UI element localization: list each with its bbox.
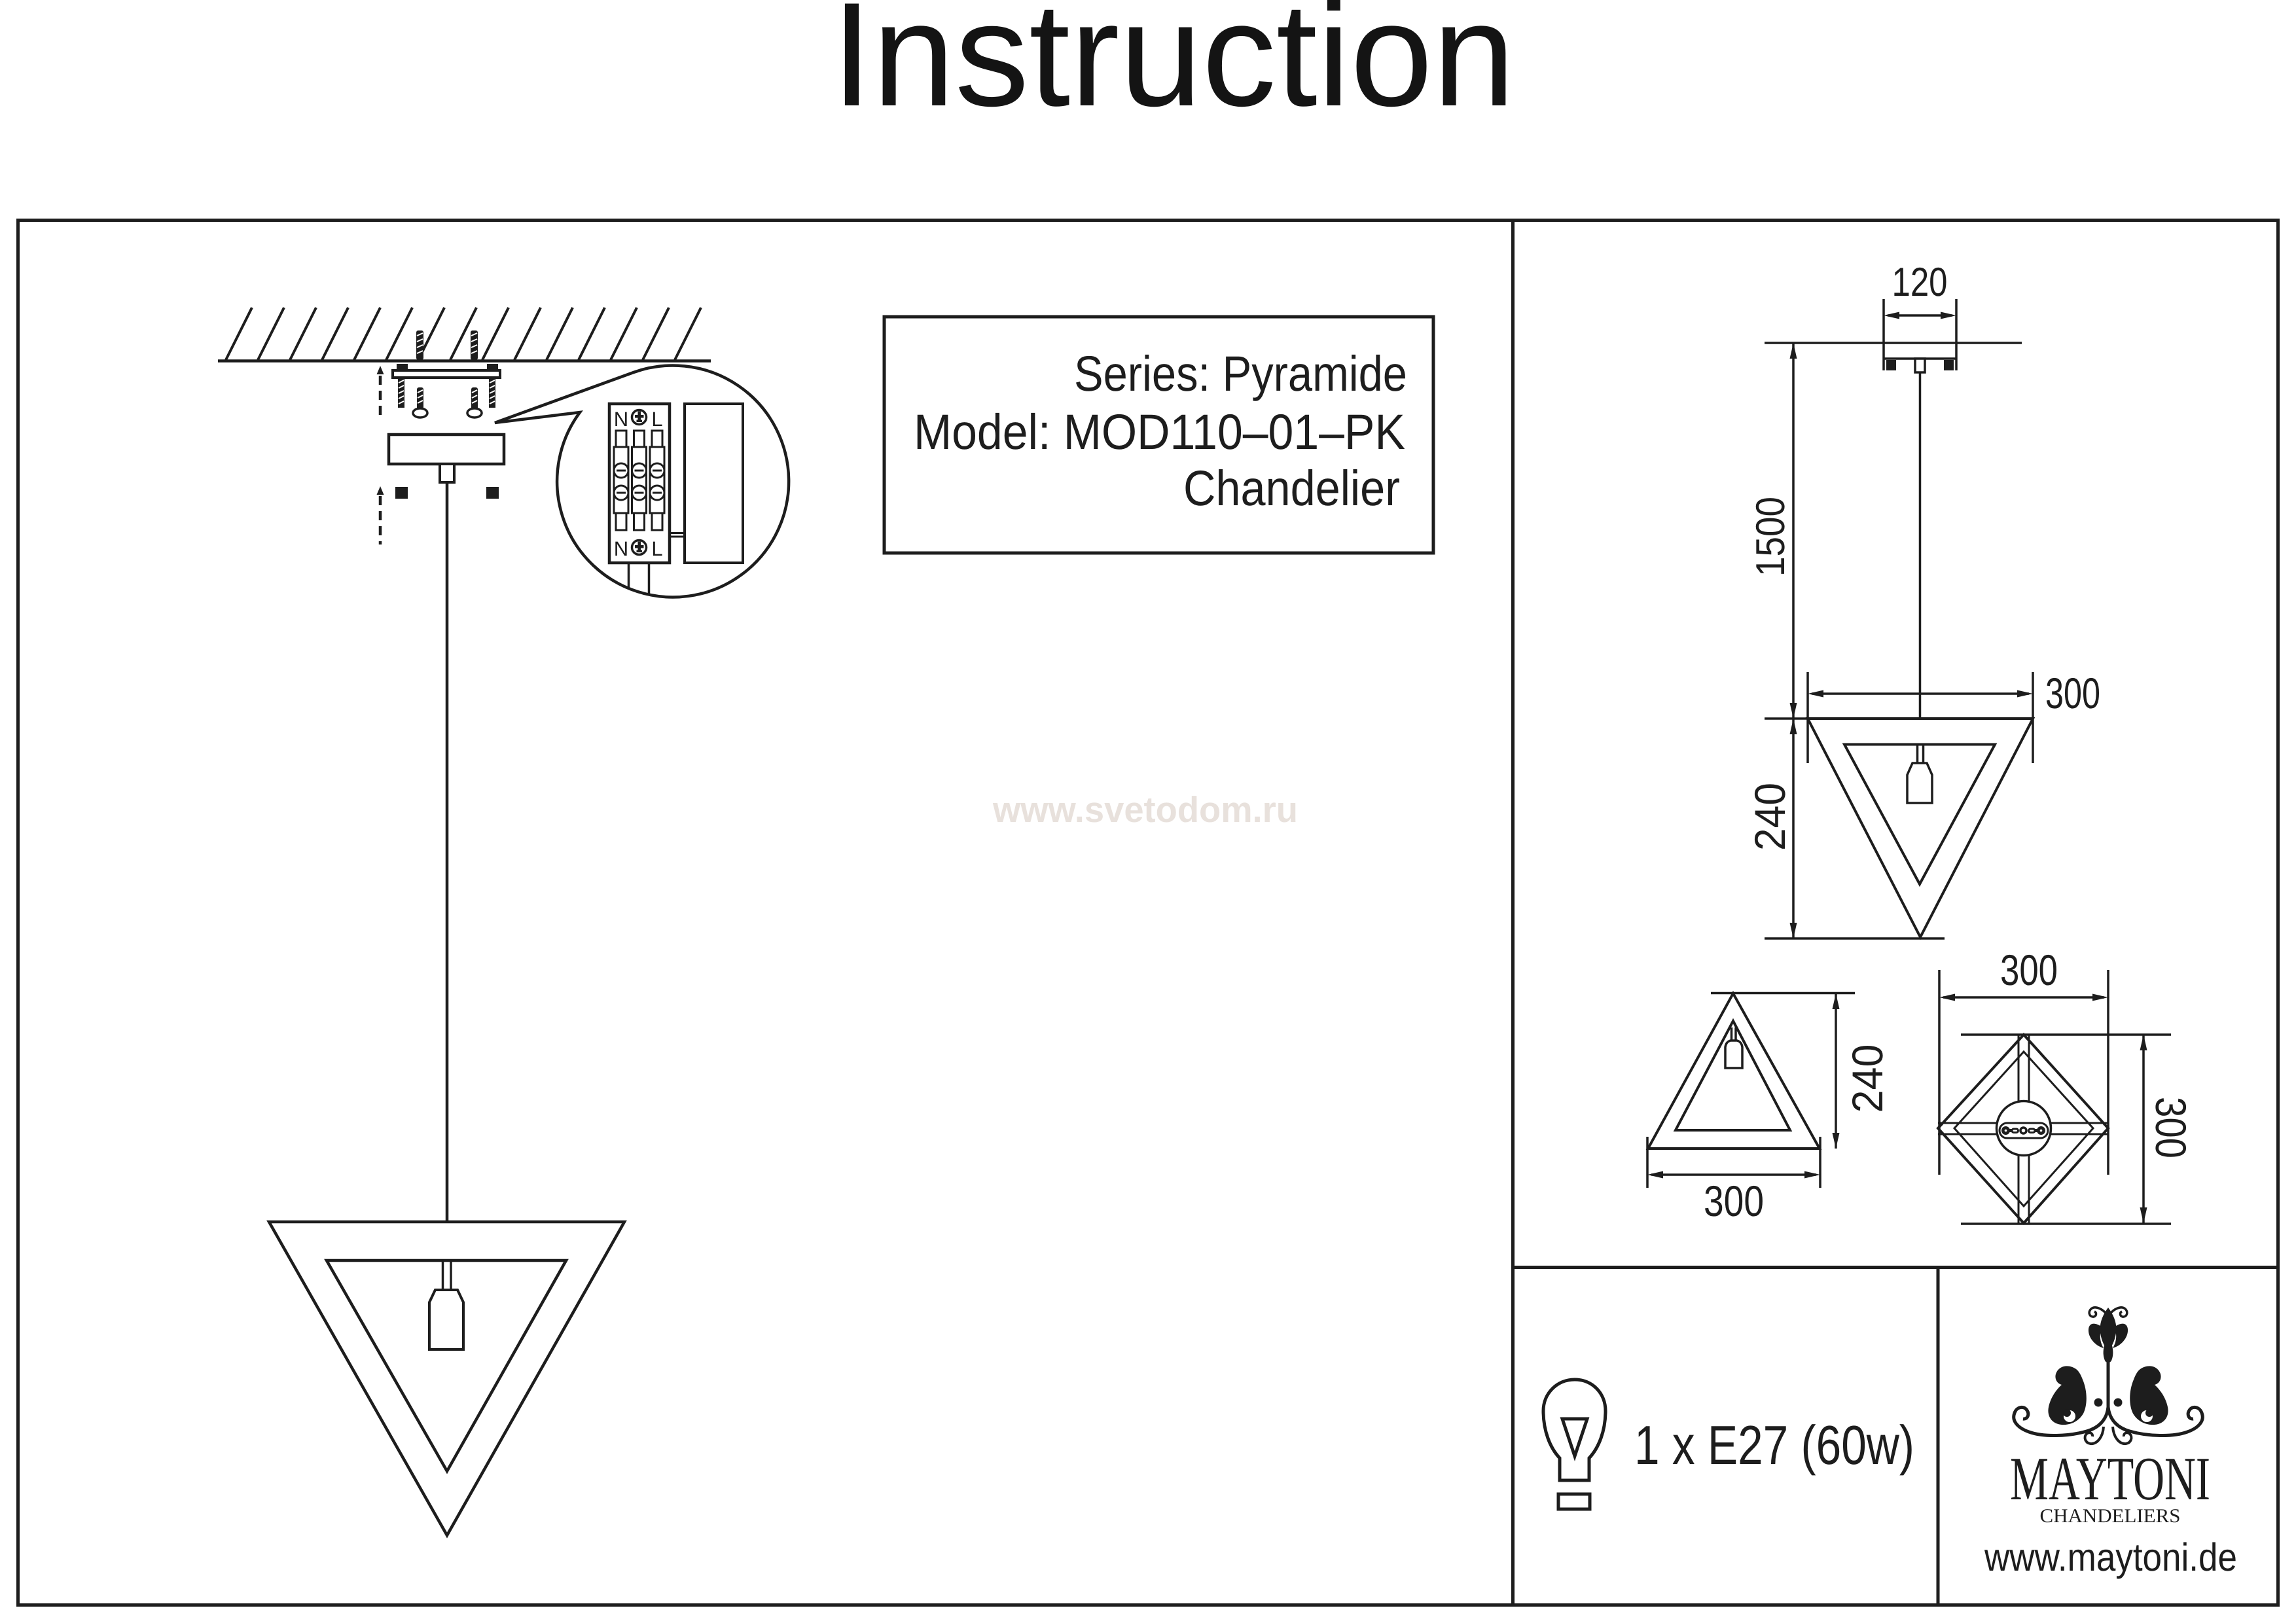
svg-text:300: 300 bbox=[2147, 1097, 2195, 1158]
svg-text:300: 300 bbox=[2045, 669, 2100, 717]
svg-text:1 x E27 (60w): 1 x E27 (60w) bbox=[1634, 1414, 1914, 1476]
svg-text:300: 300 bbox=[2000, 946, 2058, 994]
svg-text:L: L bbox=[651, 537, 662, 560]
svg-text:N: N bbox=[614, 537, 628, 560]
svg-text:Series: Pyramide: Series: Pyramide bbox=[1074, 346, 1407, 402]
svg-text:240: 240 bbox=[1843, 1044, 1892, 1113]
svg-text:www.maytoni.de: www.maytoni.de bbox=[1984, 1535, 2237, 1579]
svg-text:www.svetodom.ru: www.svetodom.ru bbox=[992, 789, 1298, 830]
svg-text:Instruction: Instruction bbox=[831, 0, 1515, 137]
svg-text:N: N bbox=[614, 408, 628, 431]
svg-text:Model: MOD110–01–PK: Model: MOD110–01–PK bbox=[914, 404, 1405, 460]
svg-text:MAYTONI: MAYTONI bbox=[2010, 1445, 2210, 1513]
svg-text:120: 120 bbox=[1892, 260, 1948, 305]
svg-text:300: 300 bbox=[1704, 1177, 1764, 1225]
svg-text:240: 240 bbox=[1746, 783, 1794, 851]
svg-text:L: L bbox=[651, 408, 662, 431]
svg-text:1500: 1500 bbox=[1748, 497, 1793, 577]
svg-text:CHANDELIERS: CHANDELIERS bbox=[2040, 1505, 2181, 1527]
svg-text:Chandelier: Chandelier bbox=[1183, 461, 1400, 516]
